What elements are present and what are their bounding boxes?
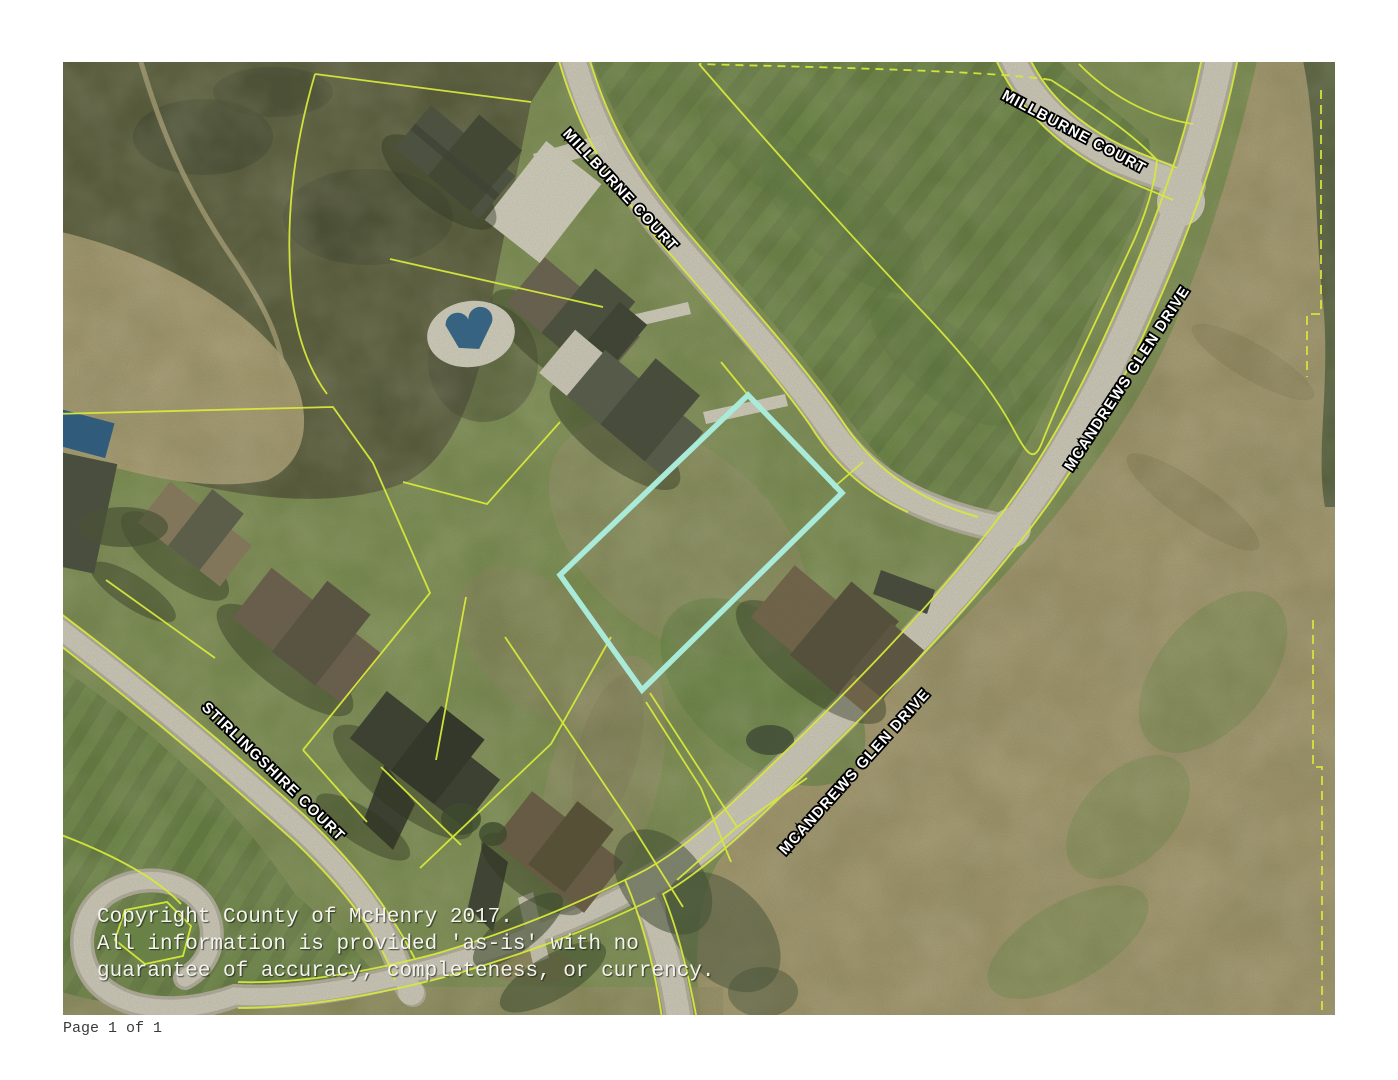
copyright-line-2: All information is provided 'as-is' with… [97,933,639,956]
photo-grain [63,62,1335,1015]
copyright-line-1: Copyright County of McHenry 2017. [97,906,513,929]
copyright-line-3: guarantee of accuracy, completeness, or … [97,960,715,983]
page-footer: Page 1 of 1 [63,1020,162,1037]
aerial-map: MILLBURNE COURT MILLBURNE COURT MCANDREW… [63,62,1335,1015]
